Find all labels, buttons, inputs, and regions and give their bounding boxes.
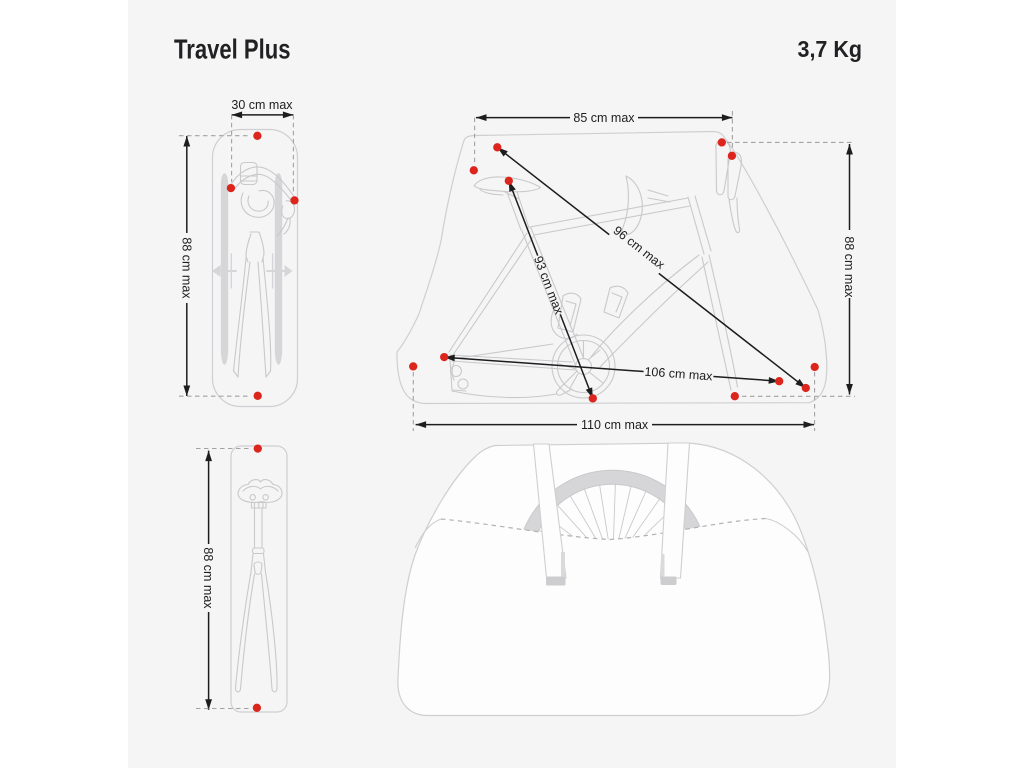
svg-text:110 cm max: 110 cm max [581, 418, 649, 432]
svg-text:3,7 Kg: 3,7 Kg [798, 36, 863, 62]
svg-text:88 cm max: 88 cm max [842, 236, 856, 298]
svg-text:30 cm max: 30 cm max [231, 98, 293, 112]
svg-text:Travel Plus: Travel Plus [174, 34, 291, 65]
svg-text:85 cm max: 85 cm max [573, 111, 635, 125]
svg-text:88 cm max: 88 cm max [201, 547, 215, 609]
svg-text:88 cm max: 88 cm max [179, 237, 193, 299]
